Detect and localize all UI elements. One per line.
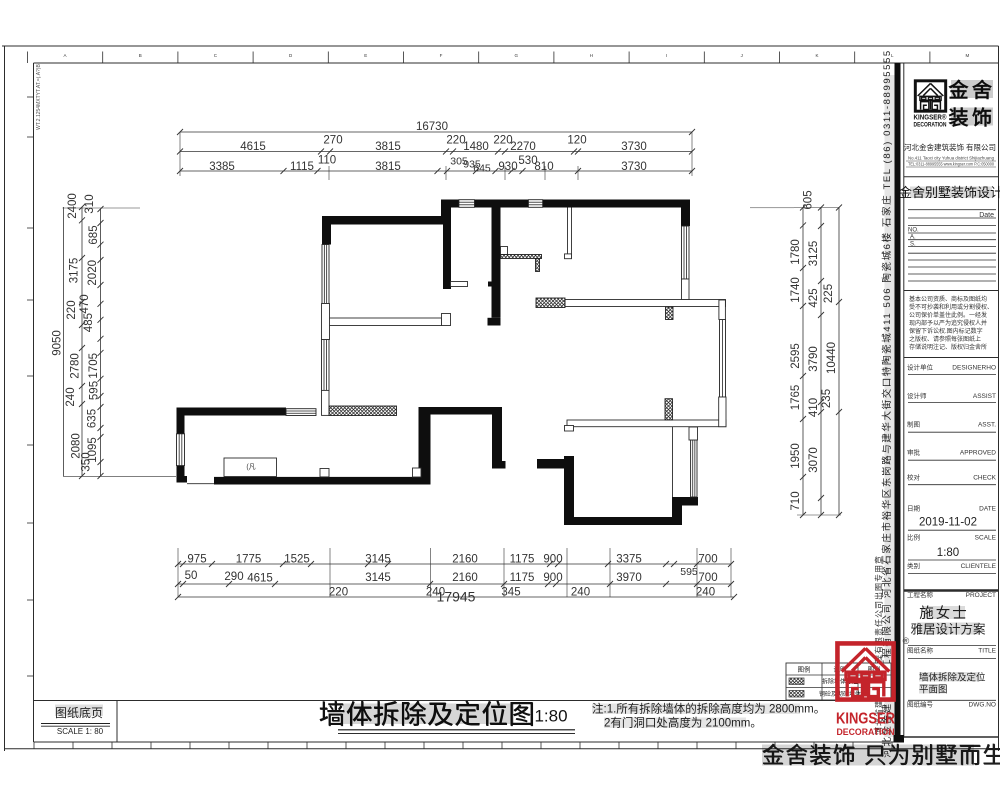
svg-text:ASST.: ASST. xyxy=(978,422,996,429)
svg-text:1175: 1175 xyxy=(510,554,535,566)
svg-text:图纸名称: 图纸名称 xyxy=(907,646,934,655)
svg-text:605: 605 xyxy=(803,190,815,209)
svg-text:2160: 2160 xyxy=(452,554,478,566)
svg-text:240: 240 xyxy=(696,587,715,599)
svg-text:DWG.NO: DWG.NO xyxy=(969,702,996,709)
svg-text:4615: 4615 xyxy=(247,573,273,585)
svg-text:ASSIST: ASSIST xyxy=(973,393,996,400)
svg-text:A: A xyxy=(63,53,66,58)
svg-text:225: 225 xyxy=(823,284,835,303)
svg-text:2020: 2020 xyxy=(87,260,99,286)
svg-text:2160: 2160 xyxy=(452,572,478,584)
svg-text:图纸编号: 图纸编号 xyxy=(907,700,934,709)
svg-text:645: 645 xyxy=(473,163,491,175)
svg-text:1:80: 1:80 xyxy=(534,707,567,726)
svg-text:3790: 3790 xyxy=(808,346,820,372)
svg-text:595: 595 xyxy=(89,381,101,400)
svg-text:220: 220 xyxy=(329,587,348,599)
svg-text:现内部予以严为追究侵权人并: 现内部予以严为追究侵权人并 xyxy=(909,319,987,327)
svg-text:工程名称: 工程名称 xyxy=(907,590,934,599)
svg-text:900: 900 xyxy=(543,554,562,566)
svg-text:425: 425 xyxy=(808,288,820,307)
svg-text:930: 930 xyxy=(498,161,517,173)
svg-text:240: 240 xyxy=(65,387,77,406)
svg-text:F: F xyxy=(440,53,443,58)
svg-text:1950: 1950 xyxy=(790,443,802,469)
svg-text:J: J xyxy=(741,53,743,58)
svg-text:B: B xyxy=(139,53,142,58)
svg-text:DECORATION: DECORATION xyxy=(837,727,895,738)
svg-text:CLIENTELE: CLIENTELE xyxy=(961,563,997,570)
svg-text:120: 120 xyxy=(567,135,586,147)
svg-text:3815: 3815 xyxy=(375,161,401,173)
svg-text:APPROVED: APPROVED xyxy=(960,450,996,457)
svg-text:K: K xyxy=(815,53,818,58)
svg-text:3070: 3070 xyxy=(808,447,820,473)
svg-text:河北金舍建筑装饰 有限公司: 河北金舍建筑装饰 有限公司 xyxy=(904,142,996,152)
svg-text:SCALE 1: 80: SCALE 1: 80 xyxy=(57,727,104,736)
svg-text:E: E xyxy=(364,53,367,58)
svg-text:PROJECT: PROJECT xyxy=(966,592,996,599)
svg-text:公司保价单盖住此例。一经发: 公司保价单盖住此例。一经发 xyxy=(909,311,987,319)
svg-text:470: 470 xyxy=(79,294,91,313)
svg-text:WT.2.1254MXTYT.AT.=(.A?)B: WT.2.1254MXTYT.AT.=(.A?)B xyxy=(36,64,42,130)
svg-text:图例: 图例 xyxy=(798,665,811,674)
svg-text:Date: Date xyxy=(979,212,994,219)
svg-text:235: 235 xyxy=(821,389,833,408)
svg-text:900: 900 xyxy=(543,572,562,584)
svg-text:A.: A. xyxy=(910,235,916,241)
svg-text:保留下诉讼权.图内标记数字: 保留下诉讼权.图内标记数字 xyxy=(909,327,983,335)
svg-text:1:80: 1:80 xyxy=(937,547,959,559)
svg-text:M: M xyxy=(966,53,970,58)
svg-text:485: 485 xyxy=(83,313,95,332)
svg-text:700: 700 xyxy=(698,572,717,584)
svg-text:DATE: DATE xyxy=(979,506,997,513)
svg-text:比例: 比例 xyxy=(907,533,920,542)
svg-text:NO.: NO. xyxy=(908,228,919,234)
svg-text:3970: 3970 xyxy=(616,572,642,584)
svg-text:制图: 制图 xyxy=(907,420,920,429)
svg-text:1775: 1775 xyxy=(236,554,262,566)
svg-text:1780: 1780 xyxy=(790,239,802,265)
svg-text:受不可抄袭和利用或分割侵权、: 受不可抄袭和利用或分割侵权、 xyxy=(909,303,993,311)
svg-text:3175: 3175 xyxy=(69,258,81,284)
svg-text:基本公司资质、商标及图纸均: 基本公司资质、商标及图纸均 xyxy=(909,295,987,303)
svg-text:KINGSER®: KINGSER® xyxy=(914,114,948,122)
svg-text:10440: 10440 xyxy=(826,342,838,374)
svg-text:CHECK: CHECK xyxy=(973,475,996,482)
svg-text:1765: 1765 xyxy=(790,385,802,411)
svg-text:S.: S. xyxy=(910,242,916,248)
svg-text:图纸底页: 图纸底页 xyxy=(55,705,103,720)
svg-text:之版权、请参照每张图纸上: 之版权、请参照每张图纸上 xyxy=(909,335,981,343)
svg-text:1525: 1525 xyxy=(284,554,310,566)
svg-text:I: I xyxy=(666,53,667,58)
svg-text:审批: 审批 xyxy=(907,448,921,457)
svg-text:110: 110 xyxy=(318,155,336,167)
svg-text:2780: 2780 xyxy=(70,353,82,379)
svg-text:DESIGNERHO: DESIGNERHO xyxy=(952,365,996,372)
svg-text:类别: 类别 xyxy=(907,561,920,570)
svg-text:2400: 2400 xyxy=(67,193,79,219)
svg-text:9050: 9050 xyxy=(52,330,64,356)
svg-text:3145: 3145 xyxy=(365,554,391,566)
svg-text:KINGSER: KINGSER xyxy=(836,711,895,728)
svg-text:595: 595 xyxy=(680,566,698,578)
svg-text:3145: 3145 xyxy=(365,572,391,584)
svg-text:1175: 1175 xyxy=(510,572,535,584)
svg-text:3815: 3815 xyxy=(375,141,401,153)
svg-text:3125: 3125 xyxy=(808,241,820,267)
svg-text:2019-11-02: 2019-11-02 xyxy=(919,517,977,529)
svg-text:SCALE: SCALE xyxy=(975,535,997,542)
svg-text:700: 700 xyxy=(698,554,717,566)
svg-text:3730: 3730 xyxy=(621,141,647,153)
svg-text:TITLE: TITLE xyxy=(978,648,996,655)
svg-text:16730: 16730 xyxy=(416,121,448,133)
svg-text:975: 975 xyxy=(187,554,206,566)
svg-text:410: 410 xyxy=(808,398,820,417)
svg-text:810: 810 xyxy=(534,161,553,173)
svg-text:H: H xyxy=(590,53,593,58)
svg-text:3730: 3730 xyxy=(621,161,647,173)
svg-text:635: 635 xyxy=(87,409,99,428)
svg-text:240: 240 xyxy=(571,587,590,599)
svg-text:710: 710 xyxy=(790,491,802,510)
svg-text:校对: 校对 xyxy=(907,473,921,482)
svg-text:1705: 1705 xyxy=(88,353,100,379)
svg-text:50: 50 xyxy=(185,570,198,582)
svg-text:1740: 1740 xyxy=(790,277,802,303)
svg-text:3385: 3385 xyxy=(209,161,235,173)
svg-text:4615: 4615 xyxy=(240,141,266,153)
svg-text:2595: 2595 xyxy=(790,343,802,369)
svg-text:(凡: (凡 xyxy=(246,463,255,471)
svg-text:3375: 3375 xyxy=(616,554,642,566)
svg-text:TEL:0311-88995555 www.kingser.: TEL:0311-88995555 www.kingser.com P.C:05… xyxy=(908,162,994,167)
svg-text:1115: 1115 xyxy=(290,161,314,173)
svg-text:220: 220 xyxy=(66,300,78,319)
svg-text:270: 270 xyxy=(323,135,342,147)
svg-text:310: 310 xyxy=(84,194,96,213)
svg-text:2270: 2270 xyxy=(510,141,536,153)
svg-text:685: 685 xyxy=(88,225,100,244)
svg-text:®: ® xyxy=(903,636,910,646)
svg-text:1480: 1480 xyxy=(463,141,489,153)
svg-text:日期: 日期 xyxy=(907,505,921,513)
svg-text:设计单位: 设计单位 xyxy=(907,363,934,372)
svg-text:290: 290 xyxy=(224,571,243,583)
svg-text:350: 350 xyxy=(81,452,93,471)
svg-text:No.411 Taoci city Yuhua distri: No.411 Taoci city Yuhua district Shijiaz… xyxy=(908,156,994,161)
svg-text:G: G xyxy=(514,53,518,58)
svg-text:设计师: 设计师 xyxy=(907,391,927,400)
svg-text:DECORATION: DECORATION xyxy=(914,123,947,129)
svg-text:17945: 17945 xyxy=(437,589,476,605)
svg-text:存储说明注记、版权归金舍所: 存储说明注记、版权归金舍所 xyxy=(909,343,987,351)
